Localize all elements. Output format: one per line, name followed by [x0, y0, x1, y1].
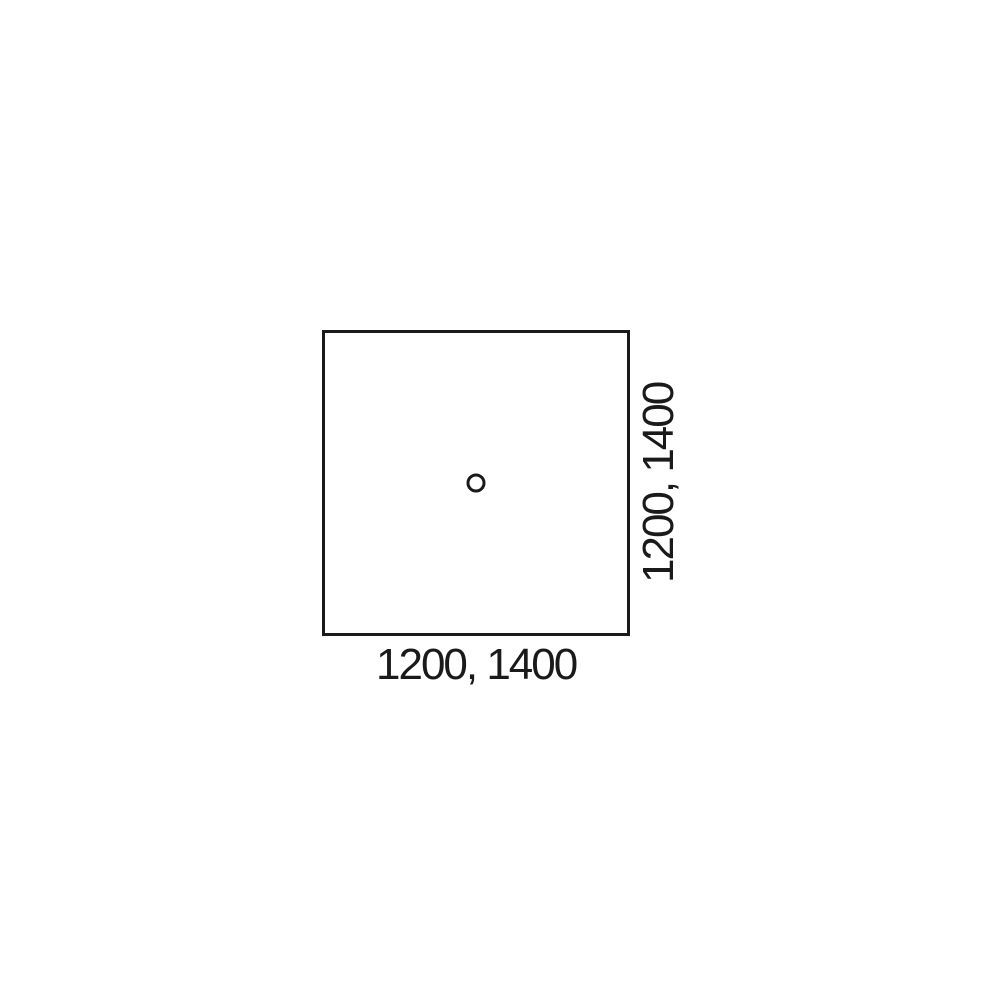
- center-hole: [467, 474, 486, 493]
- width-dimension-label: 1200, 1400: [376, 642, 576, 688]
- diagram-canvas: 1200, 1400 1200, 1400: [0, 0, 1000, 1000]
- panel-outline: [322, 330, 630, 636]
- depth-dimension-label: 1200, 1400: [636, 383, 682, 583]
